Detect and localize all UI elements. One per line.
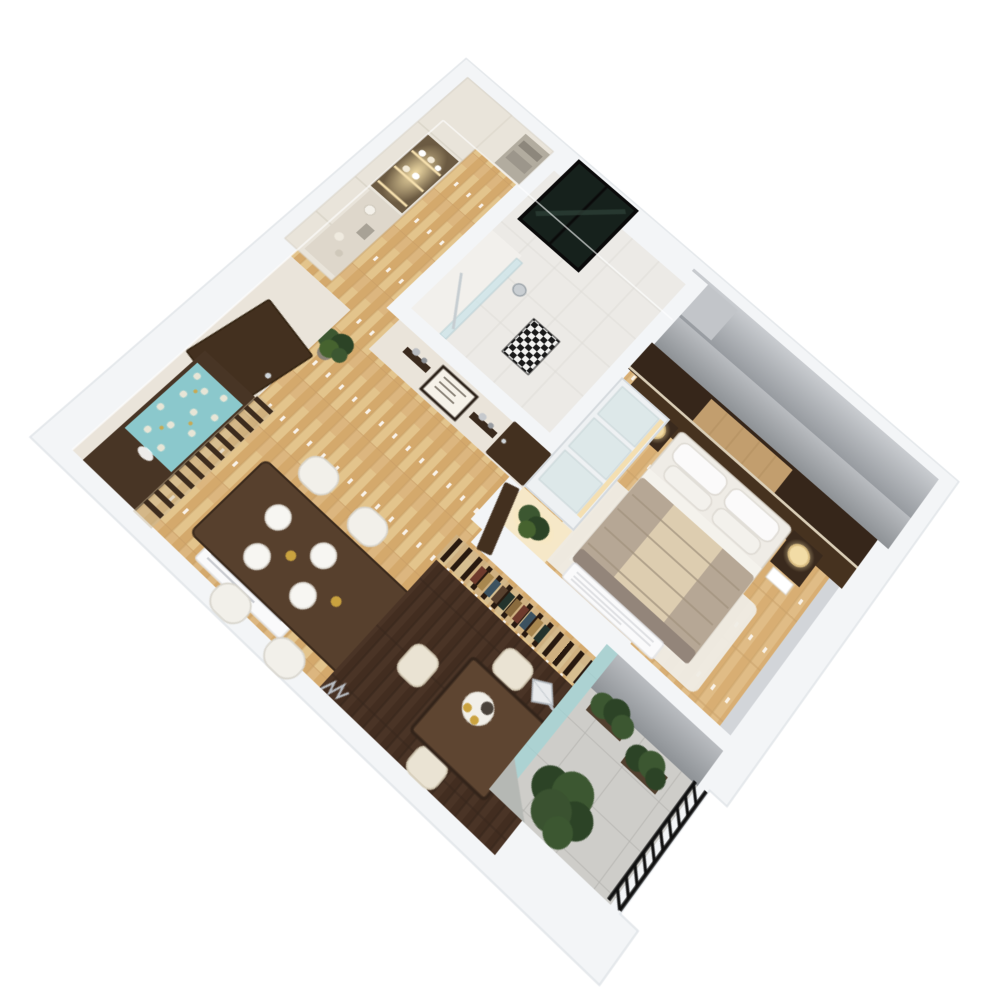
floorplan-render — [0, 0, 1000, 1000]
apartment-plan — [50, 82, 932, 963]
